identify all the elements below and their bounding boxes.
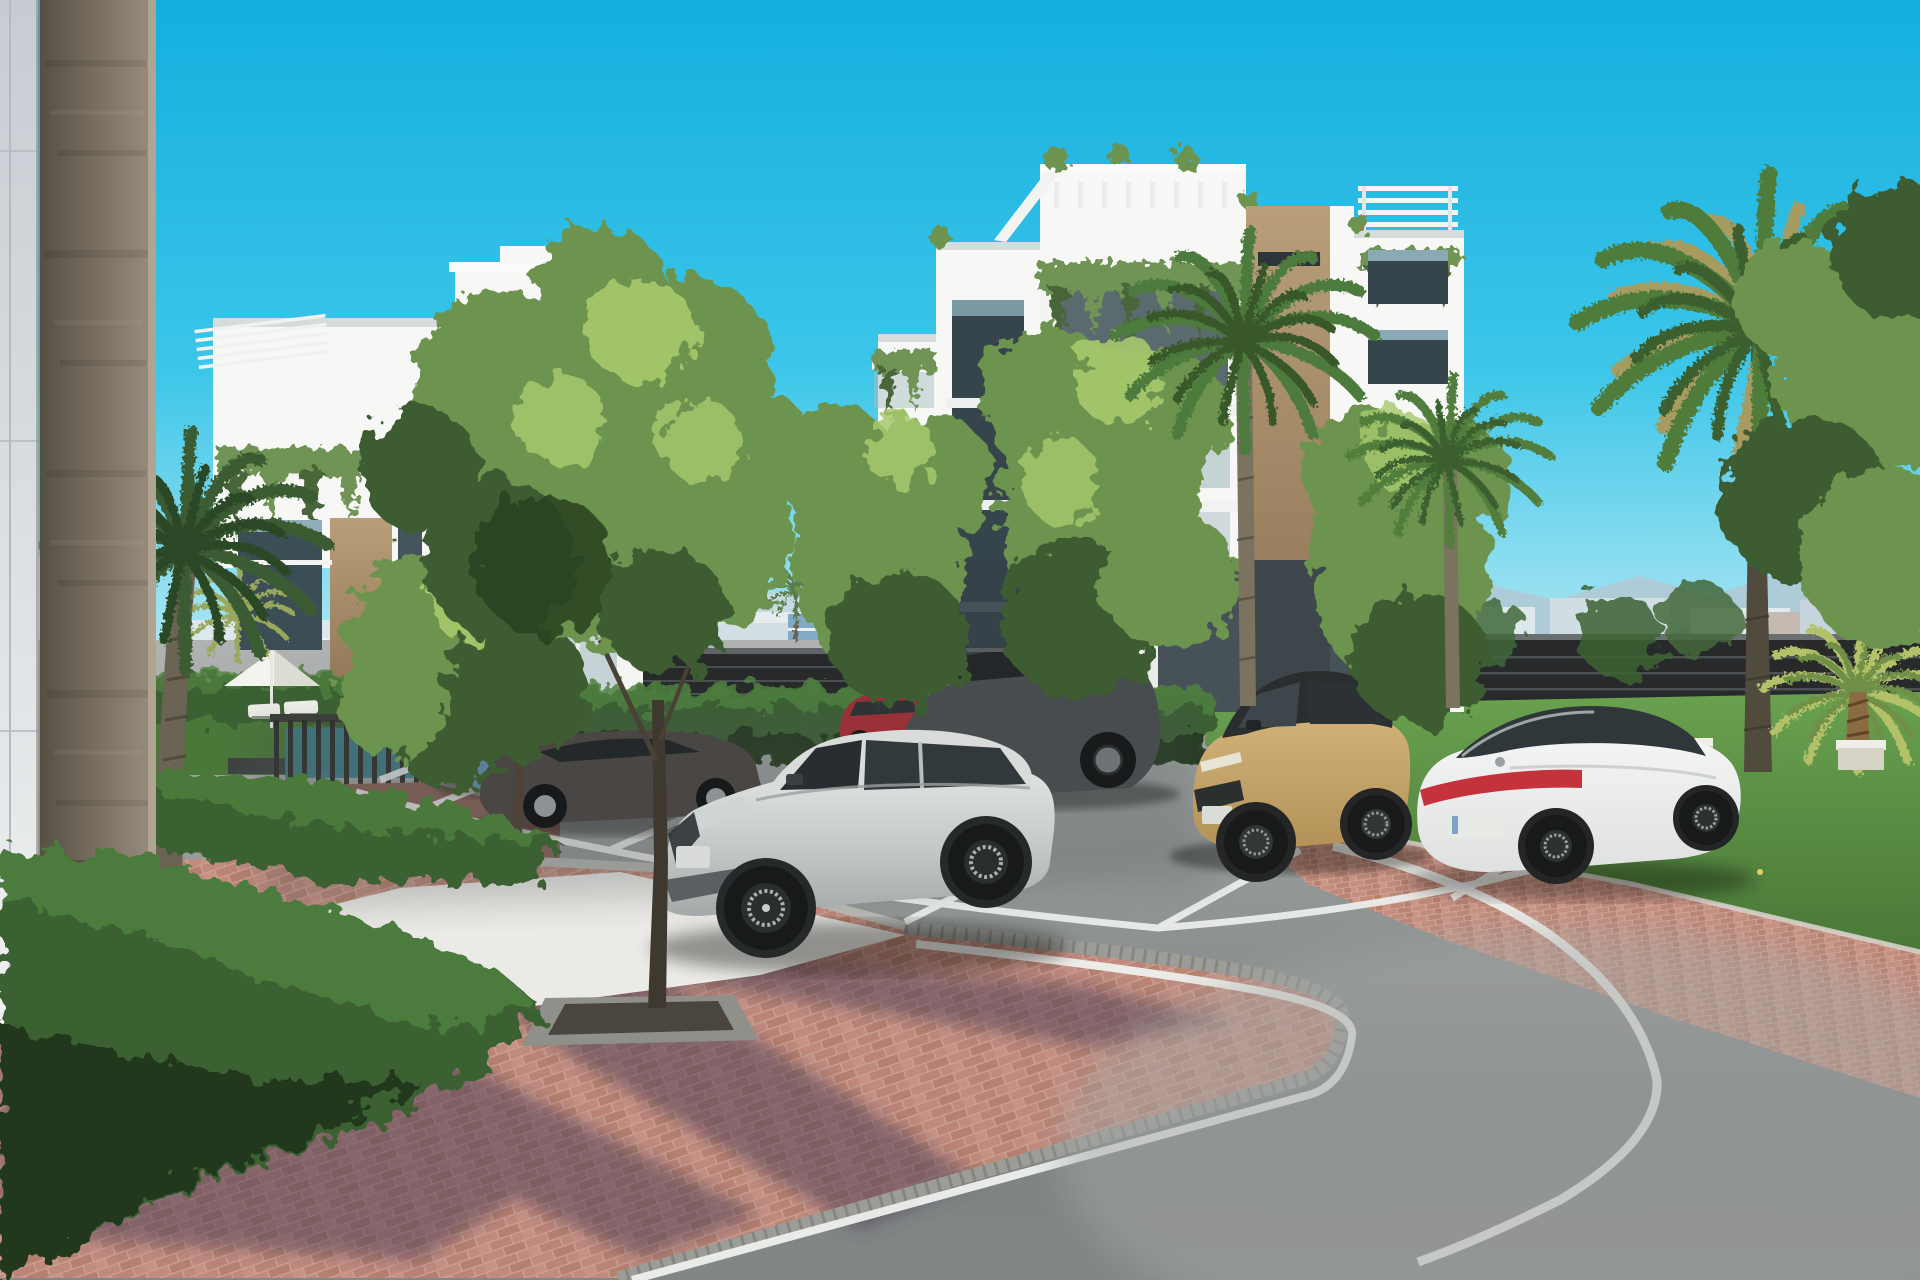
tree-pit <box>522 995 758 1046</box>
palm-planter <box>1836 740 1886 770</box>
render-viewport <box>0 0 1920 1280</box>
